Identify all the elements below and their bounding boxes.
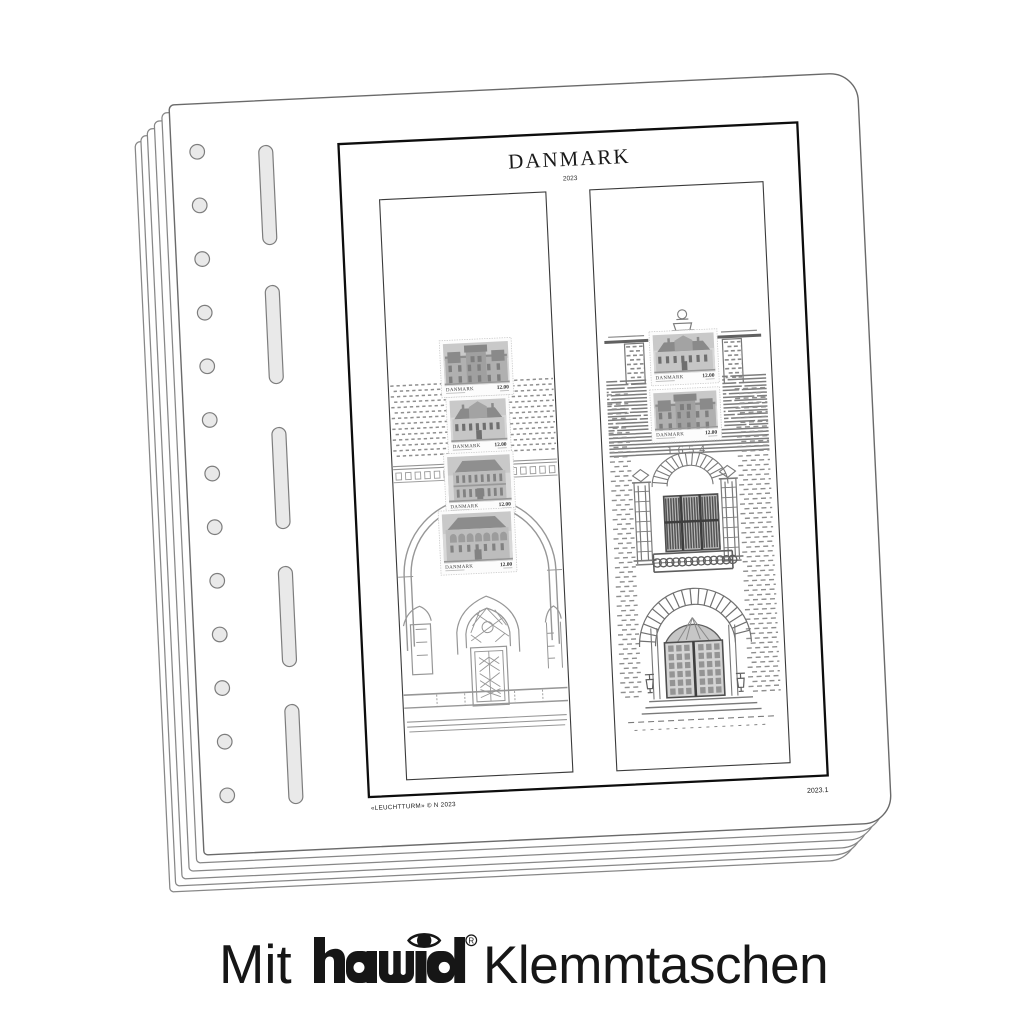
- svg-text:12.00: 12.00: [499, 502, 512, 509]
- svg-text:Mit: Mit: [219, 934, 292, 995]
- svg-text:12.00: 12.00: [702, 373, 715, 380]
- svg-text:12.00: 12.00: [500, 562, 513, 569]
- svg-text:R: R: [468, 936, 474, 945]
- svg-text:2023: 2023: [563, 175, 578, 183]
- svg-text:12.00: 12.00: [494, 442, 507, 449]
- svg-text:Klemmtaschen: Klemmtaschen: [483, 936, 828, 995]
- svg-text:12.00: 12.00: [705, 430, 718, 437]
- svg-text:2023.1: 2023.1: [807, 787, 829, 795]
- svg-text:12.00: 12.00: [497, 384, 510, 391]
